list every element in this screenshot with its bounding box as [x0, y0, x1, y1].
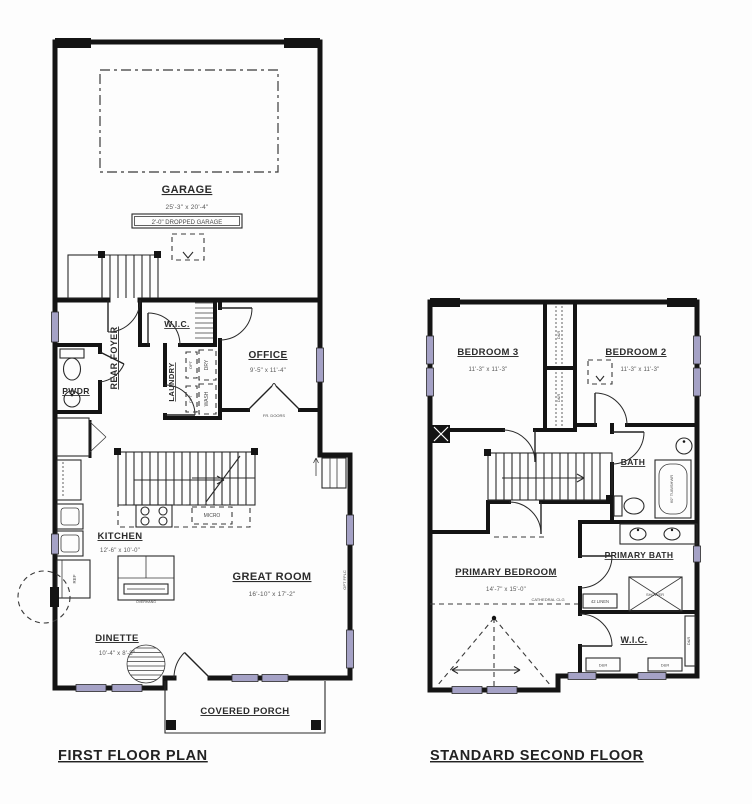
bedroom2-dims: 11'-3" x 11'-3": [620, 367, 659, 373]
wic-label: W.I.C.: [164, 319, 190, 329]
great-room-label: GREAT ROOM: [233, 571, 312, 583]
pwdr-toilet: [60, 349, 84, 380]
hall-closet-walls: [545, 302, 575, 430]
main-stairs: [114, 448, 258, 505]
dropped-garage-note: 2'-0" DROPPED GARAGE: [132, 214, 242, 228]
laundry-label: LAUNDRY: [167, 362, 176, 401]
primary-bath-label: PRIMARY BATH: [605, 550, 674, 560]
double-vanity: [620, 524, 697, 544]
garage-pier-left: [55, 38, 91, 48]
great-room-dims: 16'-10" x 17'-2": [249, 591, 296, 598]
wic-door: [148, 313, 180, 345]
wic-dr-label-1: D&R: [599, 663, 608, 668]
pwdr-walls: [55, 345, 100, 412]
primary-bedroom-label: PRIMARY BEDROOM: [455, 567, 557, 578]
closet-dr-label-2: D&R: [556, 394, 561, 403]
dinette-dims: 10'-4" x 8'-8": [99, 651, 135, 657]
garage-ceiling-dashed: [100, 70, 278, 172]
opt-fplc-label: OPT FPLC: [342, 570, 347, 590]
svg-text:2'-0" DROPPED GARAGE: 2'-0" DROPPED GARAGE: [152, 220, 223, 226]
primary-bedroom-door: [509, 502, 541, 534]
first-floor-title: FIRST FLOOR PLAN: [58, 748, 208, 764]
shower-label: SHOWER: [646, 592, 664, 597]
second-floor-outer-walls: [430, 302, 697, 690]
office-doors-note: FR. DOORS: [263, 413, 286, 418]
stair-hall-walls: [430, 502, 612, 532]
office-french-doors: [248, 384, 300, 411]
garage-dims: 25'-3" x 20'-4": [166, 204, 209, 211]
bedroom2-door: [595, 393, 627, 425]
kitchen-label: KITCHEN: [97, 531, 142, 542]
second-floor-title: STANDARD SECOND FLOOR: [430, 748, 644, 764]
ref-label: REF: [72, 574, 77, 583]
bedroom3-door: [503, 430, 535, 462]
primary-bedroom-dims: 14'-7" x 15'-0": [486, 587, 526, 593]
second-floor-stairs: [484, 449, 613, 502]
wic2-door: [580, 614, 612, 646]
office-door: [220, 308, 252, 340]
covered-porch-label: COVERED PORCH: [200, 706, 289, 717]
dryer-label: DRY: [204, 359, 210, 370]
pwdr-label: PWDR: [62, 386, 90, 396]
bath-toilet: [614, 496, 644, 516]
linen-label: 42 LINEN: [591, 599, 609, 604]
attic-access-symbol: [172, 234, 204, 260]
opt-dryer-label: OPT: [188, 360, 193, 369]
bedroom2-label: BEDROOM 2: [605, 347, 666, 358]
attic-access-symbol-2: [588, 360, 612, 384]
dinette-label: DINETTE: [95, 633, 138, 644]
island-overhang-label: OVERHANG: [136, 600, 156, 604]
chase-box: [432, 425, 450, 443]
garage-label: GARAGE: [162, 184, 213, 196]
floor-plan-drawing: GARAGE 25'-3" x 20'-4" 2'-0" DROPPED GAR…: [0, 0, 752, 804]
rear-foyer-label: REAR FOYER: [109, 326, 119, 389]
second-pier-right: [667, 298, 697, 307]
kitchen-counter: [118, 505, 250, 527]
washer-label: WASH: [204, 391, 210, 406]
micro-label: MICRO: [204, 513, 221, 519]
first-floor-outer-walls: [55, 42, 350, 688]
bath-label: BATH: [621, 457, 646, 467]
garage-stairs: [68, 251, 161, 298]
bedroom3-label: BEDROOM 3: [457, 347, 518, 358]
kitchen-dims: 12'-6" x 10'-0": [100, 548, 140, 554]
second-floor-windows: [427, 336, 701, 694]
window-seat-box: [314, 458, 347, 488]
porch-door: [174, 653, 210, 679]
opt-washer-label: OPT: [188, 394, 193, 403]
closet-dr-label-1: D&R: [556, 331, 561, 340]
bedroom3-dims: 11'-3" x 11'-3": [468, 367, 507, 373]
second-floor-plan: BEDROOM 3 11'-3" x 11'-3" BEDROOM 2 11'-…: [427, 298, 701, 694]
second-pier-left: [430, 298, 460, 307]
floor-plan-sheet: GARAGE 25'-3" x 20'-4" 2'-0" DROPPED GAR…: [0, 0, 752, 804]
wic2-label: W.I.C.: [621, 635, 648, 645]
garage-pier-right: [284, 38, 320, 48]
wic-dr-label-3: D&R: [686, 637, 691, 646]
office-dims: 9'-5" x 11'-4": [250, 368, 286, 374]
office-label: OFFICE: [248, 350, 287, 361]
first-floor-plan: GARAGE 25'-3" x 20'-4" 2'-0" DROPPED GAR…: [18, 38, 354, 733]
kitchen-island: [118, 556, 174, 600]
tub-label: 60" TUB/SHWR: [669, 475, 674, 503]
washer-dryer: [186, 350, 216, 414]
primary-bath-door: [580, 556, 612, 588]
wic-dr-label-2: D&R: [661, 663, 670, 668]
bath-sink: [676, 438, 692, 454]
cathedral-clg-label: CATHEDRAL CLG: [531, 597, 564, 602]
wic-shelving: [195, 303, 213, 338]
